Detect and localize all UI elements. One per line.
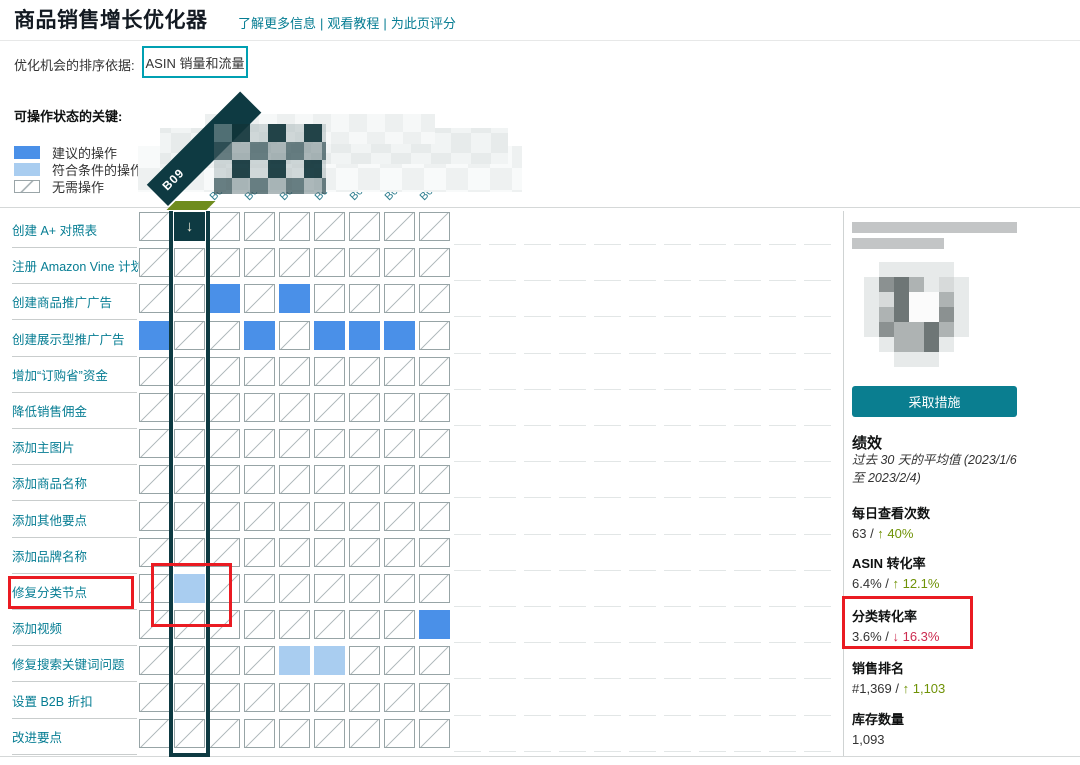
empty-cells-row-line [454,389,836,390]
row-label-9[interactable]: 添加品牌名称 [12,538,137,574]
cell-r11c5[interactable] [279,574,310,603]
cell-r1c1[interactable] [139,212,170,241]
cell-r6c7[interactable] [349,393,380,422]
row-label-6[interactable]: 添加主图片 [12,429,137,465]
cell-r6c6[interactable] [314,393,345,422]
cell-r10c8[interactable] [384,538,415,567]
row-label-0[interactable]: 创建 A+ 对照表 [12,212,137,248]
cell-r10c2[interactable] [174,538,205,567]
cell-r1c6[interactable] [314,212,345,241]
cell-r5c4[interactable] [244,357,275,386]
cell-r11c8[interactable] [384,574,415,603]
performance-title: 绩效 [852,432,882,453]
cell-r3c2[interactable] [174,284,205,313]
metric-label-1: ASIN 转化率 [852,553,1032,572]
empty-cells-row-line [454,280,836,281]
metric-number: 1,093 [852,732,885,747]
empty-cells-row-line [454,751,836,752]
cell-r15c2[interactable] [174,719,205,748]
cell-r3c6[interactable] [314,284,345,313]
cell-r2c8[interactable] [384,248,415,277]
cell-r7c9[interactable] [419,429,450,458]
cell-r5c8[interactable] [384,357,415,386]
cell-r14c2[interactable] [174,683,205,712]
redacted-product-title-bar [852,222,1017,233]
empty-cells-row-line [454,244,836,245]
cell-r1c8[interactable] [384,212,415,241]
cell-r9c2[interactable] [174,502,205,531]
cell-r14c9[interactable] [419,683,450,712]
cell-r15c3[interactable] [209,719,240,748]
cell-r11c6[interactable] [314,574,345,603]
cell-r8c8[interactable] [384,465,415,494]
metric-label-0: 每日查看次数 [852,503,1032,522]
metric-value-0: 63 / ↑ 40% [852,526,1032,541]
cell-r7c4[interactable] [244,429,275,458]
cell-r8c1[interactable] [139,465,170,494]
metric-value-1: 6.4% / ↑ 12.1% [852,576,1032,591]
cell-r14c3[interactable] [209,683,240,712]
cell-r12c3[interactable] [209,610,240,639]
cell-r3c9[interactable] [419,284,450,313]
cell-r7c2[interactable] [174,429,205,458]
empty-cells-row-line [454,715,836,716]
cell-r2c6[interactable] [314,248,345,277]
cell-r6c3[interactable] [209,393,240,422]
cell-r10c9[interactable] [419,538,450,567]
cell-r12c2[interactable] [174,610,205,639]
row-label-10[interactable]: 修复分类节点 [12,574,137,610]
cell-r12c1[interactable] [139,610,170,639]
row-label-13[interactable]: 设置 B2B 折扣 [12,683,137,719]
cell-r11c2[interactable] [174,574,205,603]
cell-r7c7[interactable] [349,429,380,458]
cell-r4c2[interactable] [174,321,205,350]
metric-delta-up: ↑ 1,103 [899,681,945,696]
cell-r14c4[interactable] [244,683,275,712]
cell-r3c3[interactable] [209,284,240,313]
row-label-12[interactable]: 修复搜索关键词问题 [12,646,137,682]
empty-cells-row-line [454,678,836,679]
cell-r8c5[interactable] [279,465,310,494]
cell-r13c1[interactable] [139,646,170,675]
cell-r15c6[interactable] [314,719,345,748]
row-label-11[interactable]: 添加视频 [12,610,137,646]
selected-asin-ribbon[interactable]: B09 [147,91,262,206]
cell-r10c7[interactable] [349,538,380,567]
cell-r11c7[interactable] [349,574,380,603]
cell-r4c6[interactable] [314,321,345,350]
metric-delta-down: ↓ 16.3% [889,629,940,644]
cell-r15c7[interactable] [349,719,380,748]
row-label-4[interactable]: 增加“订购省”资金 [12,357,137,393]
empty-cells-row-line [454,642,836,643]
cell-r6c5[interactable] [279,393,310,422]
cell-r14c8[interactable] [384,683,415,712]
cell-r1c2[interactable]: ↓ [174,212,205,241]
cell-r8c3[interactable] [209,465,240,494]
cell-r4c8[interactable] [384,321,415,350]
cell-r1c3[interactable] [209,212,240,241]
cell-r4c7[interactable] [349,321,380,350]
row-label-1[interactable]: 注册 Amazon Vine 计划 [12,248,137,284]
empty-cells-row-line [454,534,836,535]
empty-cells-row-line [454,316,836,317]
cell-r3c1[interactable] [139,284,170,313]
cell-r7c5[interactable] [279,429,310,458]
cell-r2c9[interactable] [419,248,450,277]
cell-r14c7[interactable] [349,683,380,712]
row-label-5[interactable]: 降低销售佣金 [12,393,137,429]
cell-r13c2[interactable] [174,646,205,675]
row-label-8[interactable]: 添加其他要点 [12,502,137,538]
metric-4: 库存数量1,093 [852,709,1032,747]
metric-value-3: #1,369 / ↑ 1,103 [852,681,1032,696]
cell-r5c9[interactable] [419,357,450,386]
empty-cells-row-line [454,461,836,462]
cell-r13c4[interactable] [244,646,275,675]
empty-cells-row-line [454,425,836,426]
cell-r5c6[interactable] [314,357,345,386]
cell-r12c8[interactable] [384,610,415,639]
metric-2: 分类转化率3.6% / ↓ 16.3% [852,606,1032,644]
growth-optimizer-page: 商品销售增长优化器 了解更多信息|观看教程|为此页评分 优化机会的排序依据: A… [0,0,1080,765]
cell-r6c2[interactable] [174,393,205,422]
metric-label-2: 分类转化率 [852,606,1032,625]
cell-r10c4[interactable] [244,538,275,567]
cell-r13c9[interactable] [419,646,450,675]
metric-delta-up: ↑ 12.1% [889,576,940,591]
cell-r10c5[interactable] [279,538,310,567]
cell-r9c5[interactable] [279,502,310,531]
cell-r6c4[interactable] [244,393,275,422]
cell-r14c1[interactable] [139,683,170,712]
cell-r13c5[interactable] [279,646,310,675]
table-top-divider [0,207,1080,208]
metric-3: 销售排名#1,369 / ↑ 1,103 [852,658,1032,696]
cell-r2c3[interactable] [209,248,240,277]
cell-r11c3[interactable] [209,574,240,603]
empty-cells-row-line [454,497,836,498]
cell-r15c9[interactable] [419,719,450,748]
cell-r1c5[interactable] [279,212,310,241]
cell-r8c2[interactable] [174,465,205,494]
cell-r8c9[interactable] [419,465,450,494]
cell-r15c4[interactable] [244,719,275,748]
cell-r10c6[interactable] [314,538,345,567]
cell-r3c8[interactable] [384,284,415,313]
row-label-14[interactable]: 改进要点 [12,719,137,755]
redacted-product-title-bar [852,238,944,249]
performance-subtitle: 过去 30 天的平均值 (2023/1/6 至 2023/2/4) [852,452,1024,487]
metric-value-4: 1,093 [852,732,1032,747]
take-action-button[interactable]: 采取措施 [852,386,1017,417]
cell-r2c1[interactable] [139,248,170,277]
cell-r13c6[interactable] [314,646,345,675]
cell-r5c1[interactable] [139,357,170,386]
metric-1: ASIN 转化率6.4% / ↑ 12.1% [852,553,1032,591]
cell-r2c5[interactable] [279,248,310,277]
metric-label-3: 销售排名 [852,658,1032,677]
cell-r2c4[interactable] [244,248,275,277]
empty-cells-row-line [454,353,836,354]
cell-r10c3[interactable] [209,538,240,567]
cell-r6c1[interactable] [139,393,170,422]
column-header-zone: B09 B08B0CB0LB0CB0LB0CB0C [0,0,1080,211]
cell-r11c4[interactable] [244,574,275,603]
metric-number: 63 / [852,526,874,541]
cell-r9c7[interactable] [349,502,380,531]
cell-r2c2[interactable] [174,248,205,277]
cell-r11c1[interactable] [139,574,170,603]
cell-r7c1[interactable] [139,429,170,458]
cell-r9c4[interactable] [244,502,275,531]
cell-r9c3[interactable] [209,502,240,531]
cell-r5c2[interactable] [174,357,205,386]
cell-r9c9[interactable] [419,502,450,531]
cell-r4c1[interactable] [139,321,170,350]
cell-r6c8[interactable] [384,393,415,422]
cell-r7c3[interactable] [209,429,240,458]
row-label-7[interactable]: 添加商品名称 [12,465,137,501]
cell-r12c5[interactable] [279,610,310,639]
cell-r1c9[interactable] [419,212,450,241]
metric-number: 6.4% / [852,576,889,591]
cell-r5c3[interactable] [209,357,240,386]
cell-r12c9[interactable] [419,610,450,639]
metric-number: #1,369 / [852,681,899,696]
cell-r6c9[interactable] [419,393,450,422]
cell-r15c5[interactable] [279,719,310,748]
cell-r5c5[interactable] [279,357,310,386]
cell-r3c5[interactable] [279,284,310,313]
cell-r3c4[interactable] [244,284,275,313]
cell-r8c7[interactable] [349,465,380,494]
cell-r15c8[interactable] [384,719,415,748]
table-bottom-divider [0,756,1080,757]
cell-r7c6[interactable] [314,429,345,458]
row-label-2[interactable]: 创建商品推广广告 [12,284,137,320]
cell-r9c1[interactable] [139,502,170,531]
panel-divider [843,211,844,757]
cell-r10c1[interactable] [139,538,170,567]
cell-r4c5[interactable] [279,321,310,350]
cell-r12c4[interactable] [244,610,275,639]
cell-r9c6[interactable] [314,502,345,531]
cell-r8c6[interactable] [314,465,345,494]
cell-r7c8[interactable] [384,429,415,458]
cell-r13c8[interactable] [384,646,415,675]
cell-r13c3[interactable] [209,646,240,675]
empty-cells-row-line [454,606,836,607]
cell-r4c9[interactable] [419,321,450,350]
empty-cells-row-line [454,570,836,571]
cell-r1c7[interactable] [349,212,380,241]
metric-label-4: 库存数量 [852,709,1032,728]
cell-r4c3[interactable] [209,321,240,350]
cell-r14c6[interactable] [314,683,345,712]
row-label-3[interactable]: 创建展示型推广广告 [12,321,137,357]
cell-r9c8[interactable] [384,502,415,531]
cell-r8c4[interactable] [244,465,275,494]
cell-r3c7[interactable] [349,284,380,313]
cell-r5c7[interactable] [349,357,380,386]
cell-r1c4[interactable] [244,212,275,241]
redacted-product-image [864,262,984,367]
metric-delta-up: ↑ 40% [874,526,914,541]
cell-r13c7[interactable] [349,646,380,675]
metric-number: 3.6% / [852,629,889,644]
cell-r12c6[interactable] [314,610,345,639]
cell-r15c1[interactable] [139,719,170,748]
cell-r2c7[interactable] [349,248,380,277]
cell-r12c7[interactable] [349,610,380,639]
metric-0: 每日查看次数63 / ↑ 40% [852,503,1032,541]
cell-r4c4[interactable] [244,321,275,350]
metric-value-2: 3.6% / ↓ 16.3% [852,629,1032,644]
cell-r14c5[interactable] [279,683,310,712]
cell-r11c9[interactable] [419,574,450,603]
selected-column-marker [167,201,216,210]
